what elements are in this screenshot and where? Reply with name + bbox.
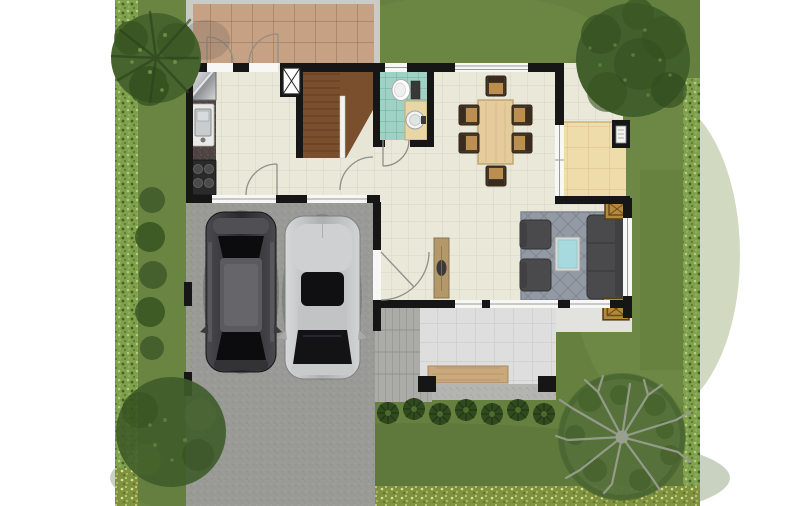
wall-post xyxy=(373,300,381,331)
armchair xyxy=(520,259,551,291)
wall-segment xyxy=(555,63,564,125)
car-trunk xyxy=(213,218,269,234)
wall-segment xyxy=(410,140,434,147)
sliding-door-side-patio xyxy=(555,125,564,196)
wall-segment xyxy=(558,300,570,308)
front-door-opening xyxy=(373,250,381,300)
faucet xyxy=(421,116,426,124)
shaft-symbol xyxy=(283,68,300,94)
door-opening xyxy=(249,63,278,72)
faucet xyxy=(201,138,206,143)
floor-plan-canvas xyxy=(0,0,801,506)
console-table xyxy=(434,238,449,298)
terrace-post xyxy=(418,376,436,392)
wall-segment xyxy=(367,195,380,203)
car-dark-sedan xyxy=(200,210,282,374)
flower-border-left xyxy=(115,468,138,506)
floor-plan-page xyxy=(0,0,801,506)
sofa xyxy=(587,215,623,299)
door-opening xyxy=(207,63,233,72)
dining-chair xyxy=(512,105,532,125)
dining-chair xyxy=(486,166,506,186)
car-sunroof xyxy=(301,272,344,306)
wall-segment xyxy=(373,202,381,250)
coffee-table xyxy=(555,237,580,271)
car-hood xyxy=(214,360,268,370)
dining-chair xyxy=(459,105,479,125)
lawn-shade-right xyxy=(640,170,684,370)
bathroom xyxy=(380,70,427,140)
vanity-counter xyxy=(405,101,427,140)
wall-segment xyxy=(186,195,212,203)
window-dining xyxy=(455,63,528,72)
wall-segment xyxy=(610,300,632,308)
glass-top xyxy=(558,240,577,268)
terrace-post xyxy=(538,376,556,392)
car-rear-glass xyxy=(218,236,264,258)
armchair xyxy=(520,220,551,249)
wall-segment xyxy=(233,63,249,72)
wall-segment xyxy=(276,195,307,203)
wall-segment xyxy=(555,196,630,204)
wall-segment xyxy=(373,300,455,308)
kitchen-sink xyxy=(192,104,214,146)
sofa-backrest xyxy=(615,217,623,297)
dining-table xyxy=(478,100,513,164)
wall-segment xyxy=(482,300,490,308)
air-conditioner-unit xyxy=(616,126,626,143)
dining-chair xyxy=(459,133,479,153)
staircase xyxy=(303,63,373,158)
car-windshield xyxy=(293,330,352,364)
walkway-apron-texture xyxy=(432,384,556,400)
trunk-top xyxy=(616,431,629,444)
wall-segment xyxy=(296,97,303,158)
fence-post xyxy=(184,282,192,306)
car-hood xyxy=(291,364,354,375)
round-shrub-bottom-left xyxy=(116,377,226,487)
cooktop xyxy=(190,160,216,195)
window-bathroom xyxy=(385,63,407,72)
dining-chair xyxy=(512,133,532,153)
window-living-east xyxy=(623,218,632,296)
dining-chair xyxy=(486,76,506,96)
windows-south xyxy=(455,300,610,308)
wall-segment xyxy=(427,63,434,147)
wall-segment xyxy=(623,198,632,220)
wall-segment xyxy=(303,63,385,72)
stair-railing xyxy=(340,96,345,158)
car-silver-sedan xyxy=(278,214,367,380)
toilet xyxy=(392,80,420,101)
wall-segment xyxy=(373,63,380,147)
terrace-step xyxy=(428,366,508,383)
kitchen xyxy=(190,66,216,195)
car-windshield xyxy=(216,332,266,360)
